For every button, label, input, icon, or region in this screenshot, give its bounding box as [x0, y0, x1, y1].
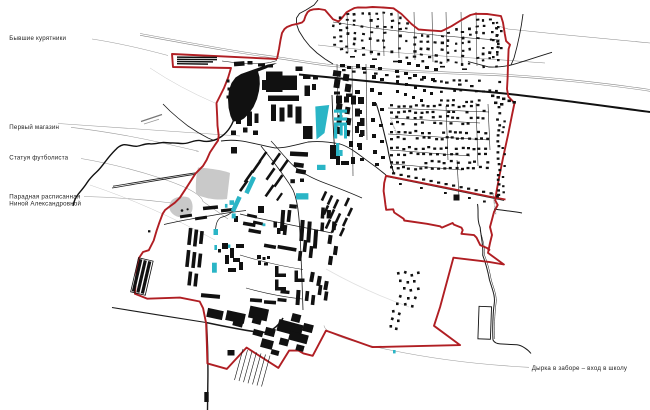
- svg-text:Парадная расписанная: Парадная расписанная: [9, 193, 80, 200]
- svg-text:Ниной Александровной: Ниной Александровной: [9, 200, 81, 207]
- svg-text:Первый магазин: Первый магазин: [9, 124, 59, 131]
- svg-text:Статуя футболиста: Статуя футболиста: [9, 155, 68, 162]
- svg-text:Дырка в заборе – вход в школу: Дырка в заборе – вход в школу: [532, 365, 628, 372]
- svg-text:Бывшие курятники: Бывшие курятники: [9, 35, 66, 42]
